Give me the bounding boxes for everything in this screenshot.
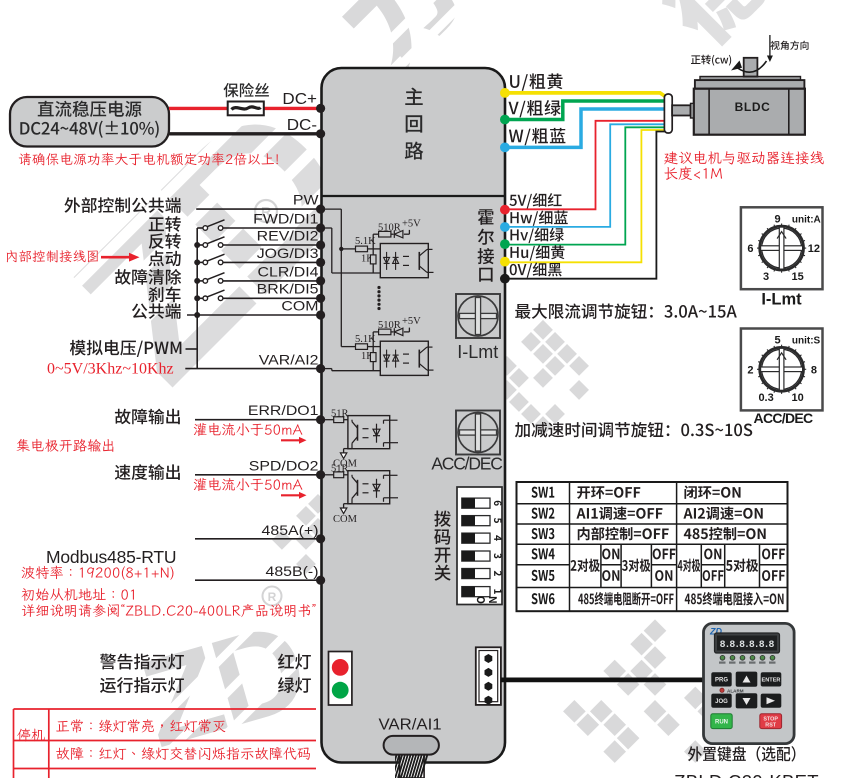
svg-text:ALARM: ALARM	[727, 688, 744, 693]
svg-text:5: 5	[775, 335, 781, 347]
svg-text:Modbus485-RTU: Modbus485-RTU	[46, 547, 176, 567]
svg-text:PRG: PRG	[715, 678, 728, 684]
svg-text:COM: COM	[281, 298, 318, 314]
svg-text:10: 10	[791, 392, 803, 404]
svg-text:I-Lmt: I-Lmt	[761, 291, 802, 309]
svg-text:REV/DI2: REV/DI2	[257, 228, 319, 244]
svg-text:RST: RST	[765, 722, 776, 728]
svg-text:3: 3	[763, 271, 769, 283]
svg-text:VAR/AI1: VAR/AI1	[378, 716, 441, 734]
svg-text:BLDC: BLDC	[735, 100, 771, 114]
svg-text:ACC/DEC: ACC/DEC	[431, 454, 502, 474]
svg-text:ACC/DEC: ACC/DEC	[754, 410, 813, 426]
svg-text:+5V: +5V	[402, 218, 421, 229]
svg-text:JOG: JOG	[715, 699, 728, 705]
svg-text:COM: COM	[333, 514, 358, 525]
svg-text:+5V: +5V	[402, 316, 421, 327]
svg-text:9: 9	[775, 213, 781, 225]
svg-text:R: R	[268, 590, 277, 604]
svg-text:0~5V/3Khz~10Khz: 0~5V/3Khz~10Khz	[47, 361, 174, 378]
svg-text:VAR/AI2: VAR/AI2	[259, 352, 319, 368]
svg-text:CLR/DI4: CLR/DI4	[258, 264, 319, 280]
svg-text:DC-: DC-	[287, 117, 317, 134]
svg-text:FWD/DI1: FWD/DI1	[253, 211, 318, 227]
svg-text:12: 12	[808, 243, 820, 255]
svg-text:unit:A: unit:A	[792, 214, 821, 225]
svg-text:JOG/DI3: JOG/DI3	[257, 246, 319, 262]
svg-text:485A(+): 485A(+)	[262, 523, 319, 539]
svg-text:PW: PW	[293, 192, 319, 208]
svg-text:485B(-): 485B(-)	[266, 564, 319, 580]
svg-text:BRK/DI5: BRK/DI5	[257, 281, 319, 297]
svg-text:DC+: DC+	[282, 91, 317, 108]
svg-text:2: 2	[747, 364, 753, 376]
svg-text:unit:S: unit:S	[792, 336, 821, 347]
svg-text:ZBLD.C20-KBET: ZBLD.C20-KBET	[674, 771, 819, 778]
svg-text:RUN: RUN	[715, 720, 728, 726]
svg-text:ENTER: ENTER	[762, 678, 781, 684]
svg-text:6: 6	[747, 243, 753, 255]
svg-text:I-Lmt: I-Lmt	[457, 342, 498, 362]
svg-text:8.8.8.8.8.8: 8.8.8.8.8.8	[720, 639, 775, 650]
svg-text:SPD/DO2: SPD/DO2	[249, 458, 319, 474]
svg-text:8: 8	[811, 364, 817, 376]
svg-text:15: 15	[791, 271, 803, 283]
svg-text:ERR/DO1: ERR/DO1	[248, 403, 319, 419]
svg-text:0.3: 0.3	[758, 392, 773, 404]
